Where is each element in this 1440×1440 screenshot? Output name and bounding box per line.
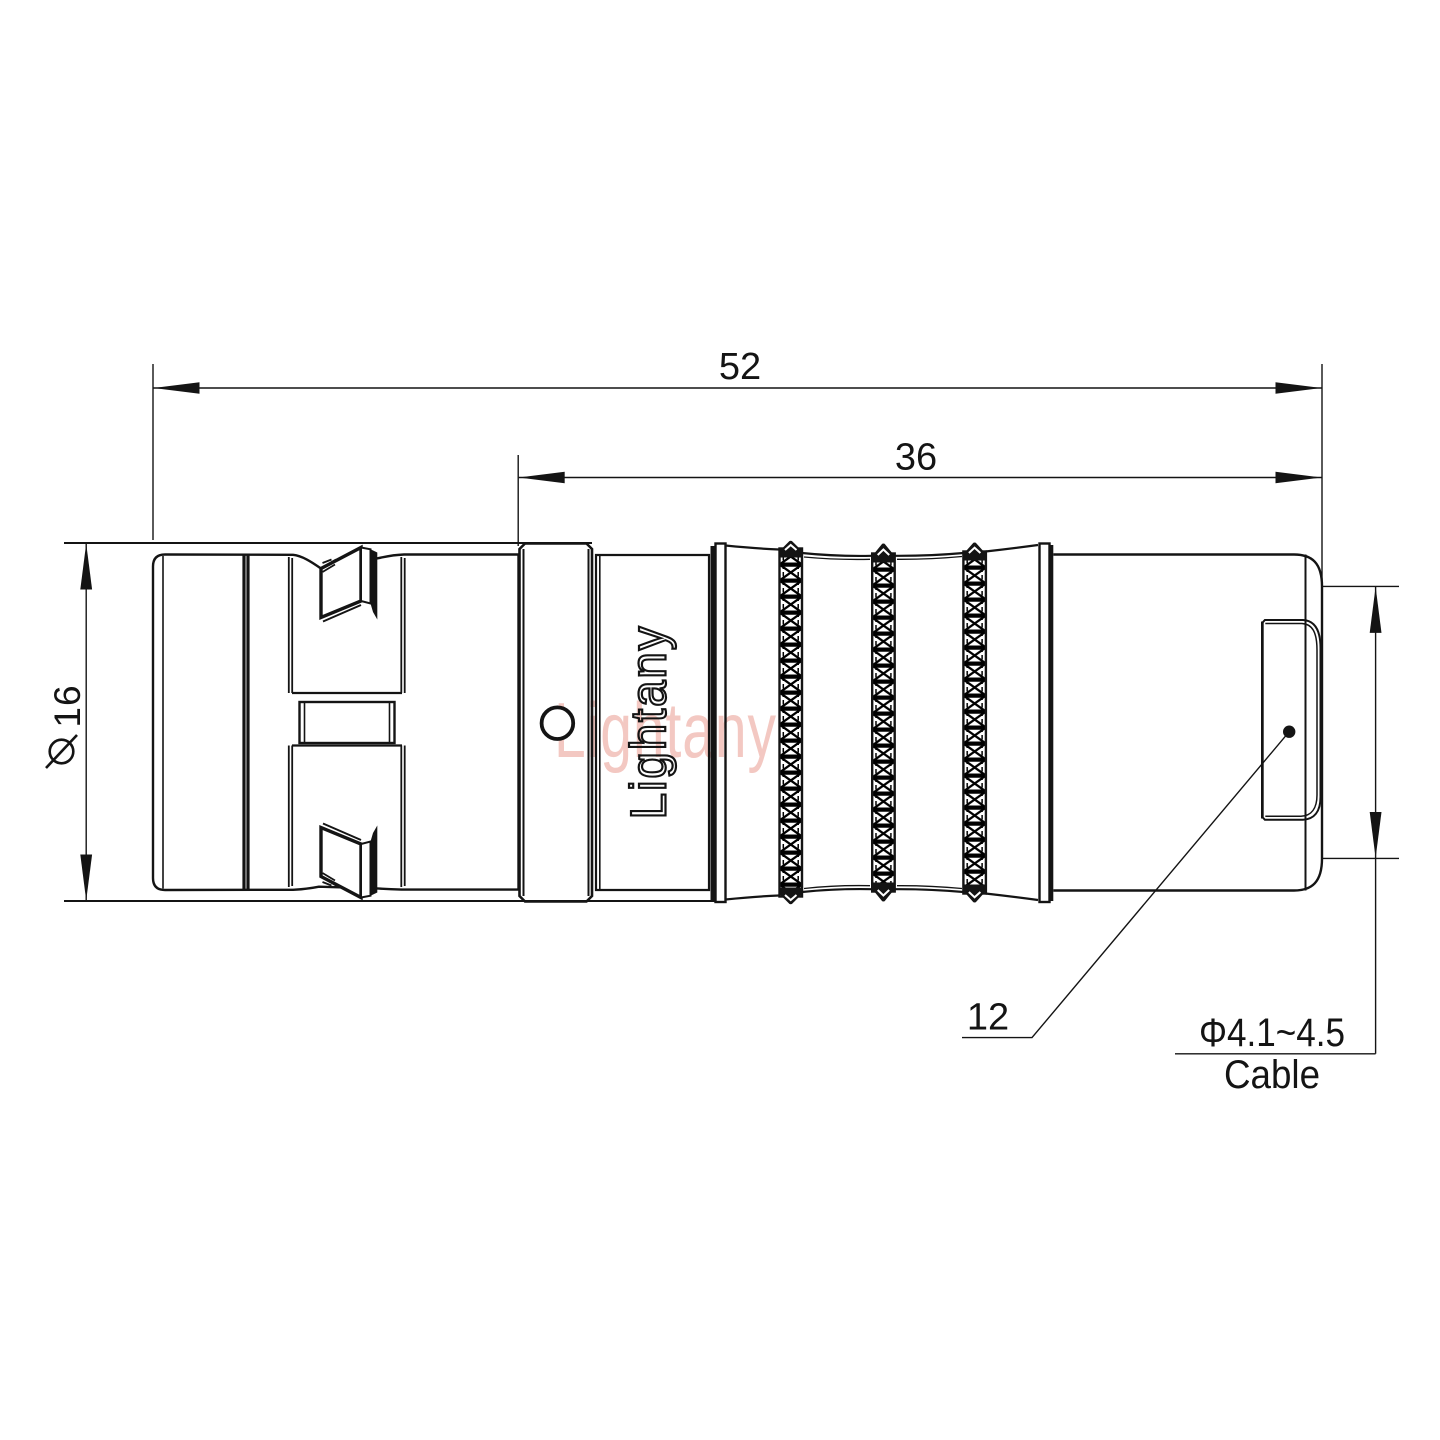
- svg-text:Φ4.1~4.5: Φ4.1~4.5: [1199, 1011, 1345, 1055]
- svg-text:16: 16: [47, 684, 88, 727]
- svg-text:52: 52: [719, 346, 761, 388]
- svg-text:Cable: Cable: [1224, 1053, 1320, 1097]
- svg-text:36: 36: [895, 437, 937, 479]
- svg-text:Lightany: Lightany: [621, 625, 676, 820]
- svg-text:12: 12: [967, 997, 1009, 1039]
